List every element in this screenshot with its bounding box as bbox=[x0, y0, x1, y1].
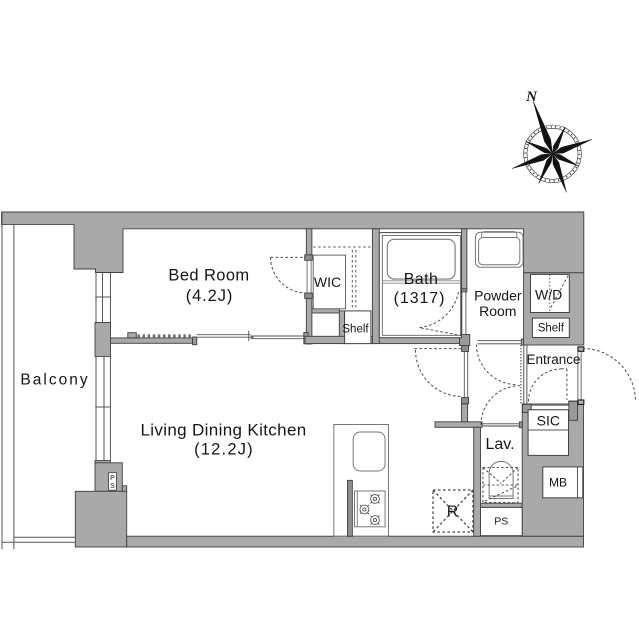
svg-text:Shelf: Shelf bbox=[538, 323, 565, 335]
svg-text:Room: Room bbox=[479, 303, 516, 319]
svg-text:Lav.: Lav. bbox=[485, 436, 514, 453]
svg-text:WIC: WIC bbox=[314, 274, 341, 290]
svg-text:Balcony: Balcony bbox=[20, 372, 89, 389]
svg-text:(12.2J): (12.2J) bbox=[194, 440, 254, 458]
svg-text:MB: MB bbox=[549, 476, 567, 490]
svg-text:Living Dining Kitchen: Living Dining Kitchen bbox=[140, 420, 306, 439]
svg-text:PS: PS bbox=[494, 516, 508, 528]
svg-text:Entrance: Entrance bbox=[526, 352, 580, 367]
svg-text:R: R bbox=[447, 504, 459, 521]
svg-text:Shelf: Shelf bbox=[342, 323, 369, 335]
svg-text:Bath: Bath bbox=[404, 271, 439, 288]
svg-text:W/D: W/D bbox=[535, 287, 562, 303]
svg-text:Powder: Powder bbox=[474, 288, 522, 304]
svg-text:(4.2J): (4.2J) bbox=[186, 287, 234, 305]
svg-text:SIC: SIC bbox=[537, 413, 560, 429]
svg-text:S: S bbox=[110, 483, 115, 490]
svg-text:Bed Room: Bed Room bbox=[168, 266, 249, 284]
svg-text:P: P bbox=[110, 475, 115, 482]
svg-text:(1317): (1317) bbox=[394, 290, 446, 307]
svg-text:N: N bbox=[525, 89, 538, 105]
